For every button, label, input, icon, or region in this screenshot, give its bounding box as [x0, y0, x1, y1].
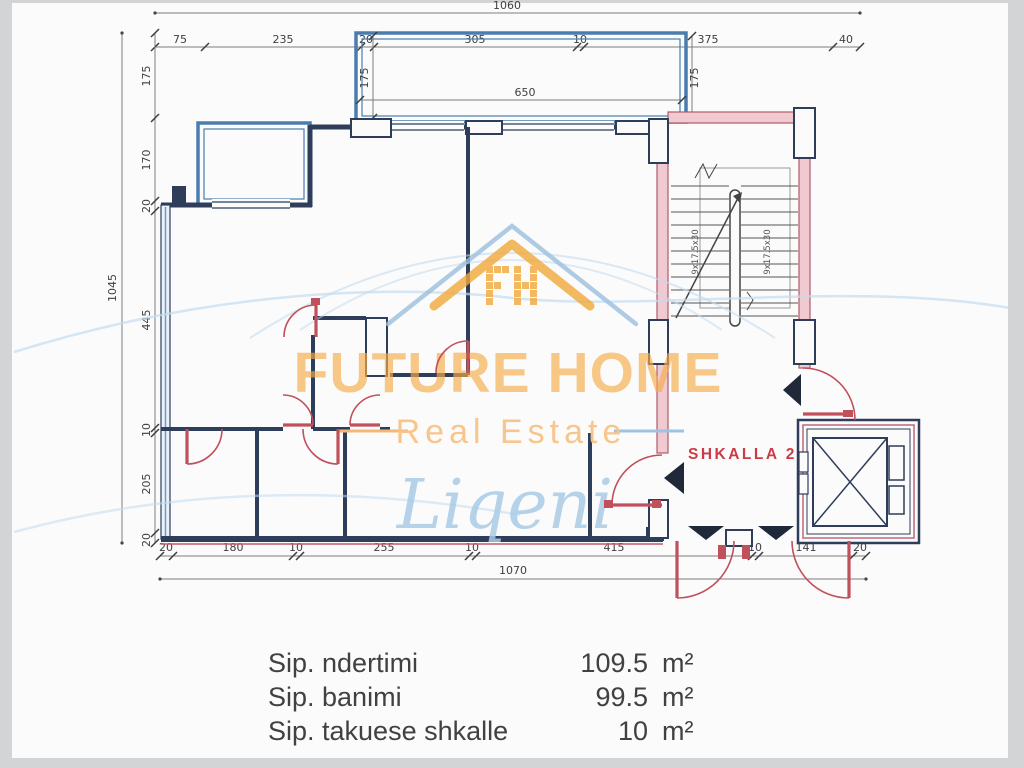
room-label-shkalla: SHKALLA 2	[688, 446, 797, 463]
dim-balcony-width: 650	[515, 86, 536, 99]
summary-row-unit: m²	[662, 648, 693, 678]
summary-row-value: 99.5	[595, 682, 648, 712]
dim-left-seg: 10	[140, 423, 153, 437]
dim-left-total: 1045	[106, 274, 119, 302]
dim-left-seg: 170	[140, 150, 153, 171]
dim-bottom-seg: 180	[223, 541, 244, 554]
dim-bottom-seg: 10	[289, 541, 303, 554]
dim-left-seg: 20	[140, 199, 153, 213]
stair-flight-label: 9x17.5x30	[691, 229, 701, 274]
dim-top-seg: 375	[698, 33, 719, 46]
watermark-script: Liqeni	[395, 466, 613, 545]
dim-top-seg: 75	[173, 33, 187, 46]
dim-bottom-seg: 255	[374, 541, 395, 554]
dim-top-seg: 40	[839, 33, 853, 46]
elevator	[798, 420, 919, 543]
watermark-brand: FUTURE HOME	[294, 341, 723, 405]
dim-left-seg: 205	[140, 474, 153, 495]
dim-left-seg: 175	[140, 66, 153, 87]
dim-top-total: 1060	[493, 0, 521, 12]
stair-flight-label: 9x17.5x30	[763, 229, 773, 274]
dim-left-seg: 20	[140, 533, 153, 547]
summary-row-label: Sip. ndertimi	[268, 648, 418, 678]
dim-top-seg: 235	[273, 33, 294, 46]
summary-row-label: Sip. takuese shkalle	[268, 716, 508, 746]
summary-row-unit: m²	[662, 682, 693, 712]
dim-bottom-total: 1070	[499, 564, 527, 577]
watermark-tagline: Real Estate	[396, 413, 627, 451]
dim-balcony-depth-right: 175	[688, 68, 701, 89]
summary-row-value: 109.5	[580, 648, 648, 678]
dim-balcony-depth-left: 175	[358, 68, 371, 89]
summary-row-value: 10	[618, 716, 648, 746]
summary-row-unit: m²	[662, 716, 693, 746]
summary-row-label: Sip. banimi	[268, 682, 402, 712]
floorplan-scan: 1060 75 235 20 305 10 375 40 1045 175 17…	[0, 0, 1024, 768]
dim-bottom-seg: 20	[159, 541, 173, 554]
